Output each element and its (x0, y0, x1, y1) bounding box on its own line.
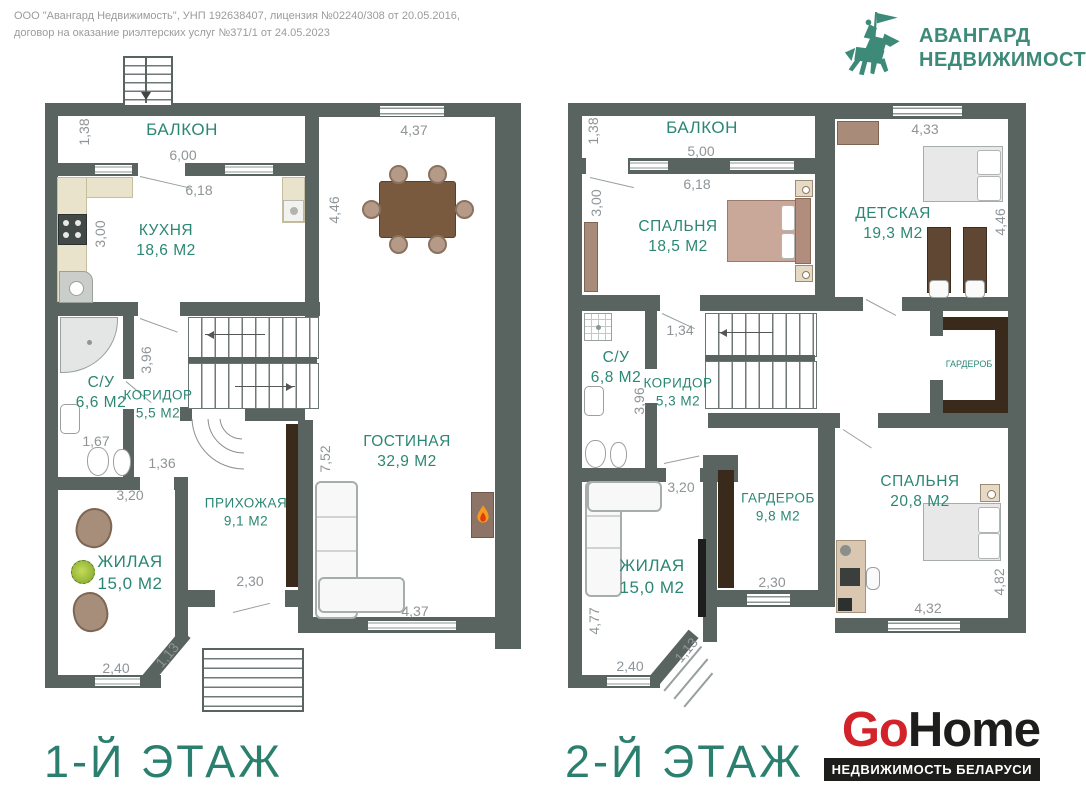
gohome-home: Home (908, 703, 1040, 757)
sofa-chaise (587, 481, 662, 512)
window (380, 106, 444, 116)
desk-lamp (840, 545, 851, 556)
room-label-room: ЖИЛАЯ 15,0 М2 (97, 551, 162, 595)
room-area: 9,1 М2 (205, 512, 287, 530)
dim-room-top: 3,20 (116, 487, 143, 503)
dining-chair (389, 165, 408, 184)
agency-name-line2: НЕДВИЖИМОСТЬ (919, 48, 1086, 72)
pillow (781, 205, 795, 231)
floor1-title: 1-Й ЭТАЖ (44, 736, 283, 788)
window (225, 165, 273, 174)
door-opening (930, 336, 943, 380)
dim-kitchen-width: 6,18 (185, 182, 212, 198)
wall (45, 103, 318, 116)
nightstand (795, 265, 813, 282)
toilet (585, 440, 606, 468)
wall (1008, 103, 1026, 633)
dim-bedroom1-width: 6,18 (683, 176, 710, 192)
floorplan-canvas: ООО "Авангард Недвижимость", УНП 1926384… (0, 0, 1086, 800)
room-label-kids: ДЕТСКАЯ 19,3 М2 (855, 204, 931, 244)
pillow (977, 176, 1001, 201)
room-area: 20,8 М2 (880, 492, 959, 512)
door-opening (138, 163, 185, 176)
stairs-direction-arrow (205, 334, 265, 335)
room-area: 19,3 М2 (855, 224, 931, 244)
dim-kids-depth: 4,46 (992, 208, 1008, 235)
dim-corridor-len: 3,96 (138, 346, 154, 373)
knob (802, 271, 810, 279)
bed-headboard (795, 198, 811, 264)
room-label-room: ЖИЛАЯ 15,0 М2 (619, 555, 684, 599)
room-area: 15,0 М2 (97, 573, 162, 595)
wall (123, 316, 134, 379)
window (888, 621, 960, 631)
room-label-bathroom: С/У 6,6 М2 (76, 373, 126, 413)
wardrobe-cabinet (718, 470, 734, 588)
dim-balcony-width: 6,00 (169, 147, 196, 163)
dim-room-bottom: 2,40 (616, 658, 643, 674)
dining-table (379, 181, 456, 238)
dining-chair (455, 200, 474, 219)
dim-dining-depth: 4,46 (326, 196, 342, 223)
room-name: ГАРДЕРОБ (741, 489, 815, 507)
room-label-closet-small: ГАРДЕРОБ (946, 359, 993, 371)
room-name: ПРИХОЖАЯ (205, 494, 287, 512)
door-opening (660, 295, 700, 311)
room-name: КОРИДОР (123, 386, 192, 404)
window (607, 677, 650, 686)
p illow (781, 233, 795, 259)
wardrobe-cabinet (837, 121, 879, 145)
stairs-direction-arrow (718, 332, 773, 333)
window (730, 161, 794, 170)
window (368, 621, 456, 630)
kitchen-sink (59, 271, 93, 303)
door-swing (664, 456, 699, 464)
room-label-closet: ГАРДЕРОБ 9,8 М2 (741, 489, 815, 524)
fireplace (471, 492, 494, 538)
room-name: СПАЛЬНЯ (638, 217, 717, 237)
gohome-logo: GoHome НЕДВИЖИМОСТЬ БЕЛАРУСИ (824, 706, 1040, 781)
gohome-go: Go (842, 703, 908, 757)
dim-corridor-len: 3,96 (631, 387, 647, 414)
window (95, 677, 140, 686)
door-swing (843, 429, 872, 448)
wall (285, 590, 313, 607)
burner (63, 220, 69, 226)
computer-monitor (840, 568, 860, 586)
gohome-tagline: НЕДВИЖИМОСТЬ БЕЛАРУСИ (824, 758, 1040, 781)
room-name: С/У (591, 348, 641, 368)
door-opening (586, 158, 628, 174)
dim-kitchen-depth: 3,00 (92, 220, 108, 247)
burner (75, 220, 81, 226)
pillow (978, 533, 1000, 559)
dim-bedroom1-depth: 3,00 (588, 189, 604, 216)
dining-chair (428, 165, 447, 184)
bidet (113, 449, 131, 476)
wall (568, 103, 582, 688)
sofa-cushion-line (587, 547, 620, 549)
gohome-wordmark: GoHome (824, 706, 1040, 755)
dim-corridor-bottom: 3,20 (667, 479, 694, 495)
window (95, 165, 132, 174)
room-name: С/У (76, 373, 126, 393)
pillow (977, 150, 1001, 175)
room-area: 5,3 М2 (643, 392, 712, 410)
corner-shower (60, 317, 118, 373)
wall (818, 297, 1026, 311)
room-area: 15,0 М2 (619, 577, 684, 599)
wall (175, 477, 188, 641)
wall (45, 302, 320, 316)
door-swing (140, 318, 178, 333)
nightstand (795, 180, 813, 197)
floor2-title: 2-Й ЭТАЖ (565, 736, 804, 788)
room-label-balcony: БАЛКОН (666, 117, 738, 139)
wall (645, 311, 657, 369)
agency-logo: АВАНГАРД НЕДВИЖИМОСТЬ (843, 10, 1086, 85)
nightstand (980, 484, 1000, 502)
closet-wardrobe (943, 400, 1008, 413)
dim-bedroom2-width: 4,32 (914, 600, 941, 616)
knight-horse-icon (843, 10, 909, 85)
door-swing (140, 176, 191, 189)
room-name: ДЕТСКАЯ (855, 204, 931, 224)
room-label-corridor: КОРИДОР 5,3 М2 (643, 374, 712, 409)
window (747, 594, 790, 605)
room-label-living: ГОСТИНАЯ 32,9 М2 (363, 432, 451, 472)
toilet (87, 447, 109, 476)
room-label-corridor: КОРИДОР 5,5 М2 (123, 386, 192, 421)
dim-closet-window: 2,30 (758, 574, 785, 590)
desk-chair (965, 280, 985, 298)
window (893, 106, 962, 116)
pillow (978, 507, 1000, 533)
dim-dining-width: 4,37 (400, 122, 427, 138)
exterior-step-stripe (683, 673, 712, 708)
room-name: ГОСТИНАЯ (363, 432, 451, 452)
door-opening (140, 477, 174, 490)
room-area: 6,8 М2 (591, 368, 641, 388)
room-name: ЖИЛАЯ (619, 555, 684, 577)
room-label-kitchen: КУХНЯ 18,6 М2 (136, 221, 196, 261)
room-name: ЖИЛАЯ (97, 551, 162, 573)
bidet (610, 442, 627, 468)
dim-living-len: 7,52 (317, 445, 333, 472)
armchair (69, 589, 112, 635)
room-label-balcony: БАЛКОН (146, 119, 218, 141)
room-area: 18,6 М2 (136, 241, 196, 261)
company-info: ООО "Авангард Недвижимость", УНП 1926384… (14, 8, 594, 41)
dim-balcony-depth: 1,38 (585, 117, 601, 144)
room-label-bedroom1: СПАЛЬНЯ 18,5 М2 (638, 217, 717, 257)
wall (708, 413, 818, 428)
sofa-cushion-line (587, 515, 620, 517)
dim-living-width: 4,37 (401, 603, 428, 619)
dim-room-side: 4,77 (586, 607, 602, 634)
burner (63, 232, 69, 238)
agency-name-line1: АВАНГАРД (919, 24, 1086, 48)
wall (568, 103, 818, 116)
company-line2: договор на оказание риэлтерских услуг №3… (14, 25, 594, 42)
shower-drain (596, 325, 601, 330)
window (630, 161, 668, 170)
dim-corridor-top: 1,34 (666, 322, 693, 338)
room-area: 6,6 М2 (76, 393, 126, 413)
door-opening (138, 302, 180, 316)
agency-name: АВАНГАРД НЕДВИЖИМОСТЬ (919, 24, 1086, 72)
wall (495, 103, 521, 649)
dining-chair (362, 200, 381, 219)
dim-bedroom2-depth: 4,82 (991, 568, 1007, 595)
company-line1: ООО "Авангард Недвижимость", УНП 1926384… (14, 8, 594, 25)
dim-kids-width: 4,33 (911, 121, 938, 137)
dim-balcony-width: 5,00 (687, 143, 714, 159)
sink-bowl (69, 281, 84, 296)
sofa-chaise (318, 577, 405, 613)
wall (818, 413, 835, 607)
plant (71, 560, 95, 584)
dining-chair (389, 235, 408, 254)
sofa-cushion-line (317, 516, 356, 518)
room-area: 32,9 М2 (363, 452, 451, 472)
sofa-cushion-line (317, 550, 356, 552)
staircase-flight (705, 361, 817, 409)
dim-hall-door: 2,30 (236, 573, 263, 589)
door-swing (233, 603, 270, 613)
door-swing (590, 177, 634, 188)
room-name: КОРИДОР (643, 374, 712, 392)
desk-chair (929, 280, 949, 298)
desk-chair (866, 567, 880, 590)
room-area: 9,8 М2 (741, 507, 815, 525)
closet-wardrobe (995, 317, 1008, 413)
lamp (987, 490, 996, 499)
room-label-hall: ПРИХОЖАЯ 9,1 М2 (205, 494, 287, 529)
tv-panel (698, 539, 706, 617)
passage-arcs (190, 419, 252, 482)
room-name: КУХНЯ (136, 221, 196, 241)
armchair (72, 504, 117, 552)
room-area: 18,5 М2 (638, 237, 717, 257)
dim-room-bottom: 2,40 (102, 660, 129, 676)
room-label-bathroom: С/У 6,8 М2 (591, 348, 641, 388)
printer (838, 598, 852, 611)
dim-balcony-depth: 1,38 (76, 118, 92, 145)
steps-direction-arrow (141, 92, 151, 105)
shower-tray (584, 313, 612, 341)
room-name: СПАЛЬНЯ (880, 472, 959, 492)
dim-bath-width: 1,67 (82, 433, 109, 449)
wardrobe-cabinet (286, 424, 298, 587)
wall (187, 590, 215, 607)
room-area: 5,5 М2 (123, 404, 192, 422)
burner (75, 232, 81, 238)
kitchen-appliance (283, 200, 304, 222)
knob (802, 186, 810, 194)
stove (58, 214, 87, 245)
appliance-knob (290, 207, 298, 215)
exterior-step-stripe (673, 658, 708, 699)
door-opening (840, 413, 878, 428)
shower-drain (87, 340, 92, 345)
room-label-bedroom2: СПАЛЬНЯ 20,8 М2 (880, 472, 959, 512)
stairs-direction-arrow (235, 386, 295, 387)
wardrobe-cabinet (584, 222, 598, 292)
wall (305, 103, 319, 318)
bathroom-sink (584, 386, 604, 416)
dim-corridor-width: 1,36 (148, 455, 175, 471)
flame-icon (476, 505, 490, 530)
entrance-steps (202, 648, 304, 712)
dining-chair (428, 235, 447, 254)
wall (815, 103, 835, 311)
